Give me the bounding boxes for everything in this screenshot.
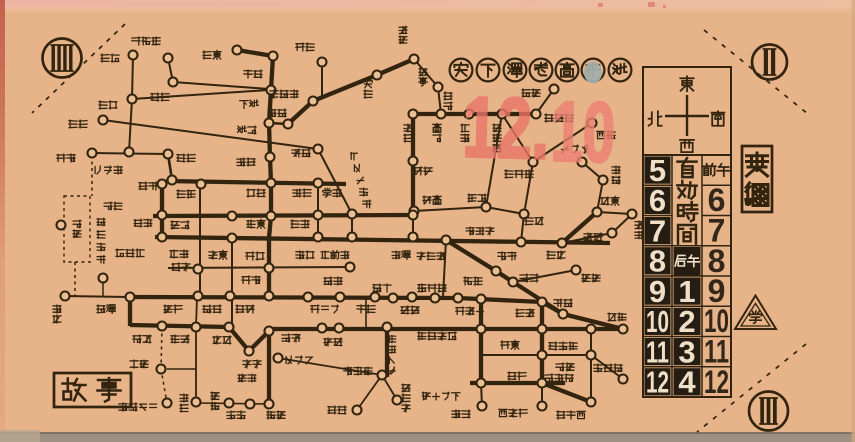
svg-text:10: 10 bbox=[550, 84, 616, 181]
svg-text:12: 12 bbox=[646, 365, 669, 400]
svg-text:4: 4 bbox=[678, 365, 696, 400]
svg-text:12: 12 bbox=[704, 364, 729, 400]
svg-text:12.: 12. bbox=[462, 80, 550, 177]
